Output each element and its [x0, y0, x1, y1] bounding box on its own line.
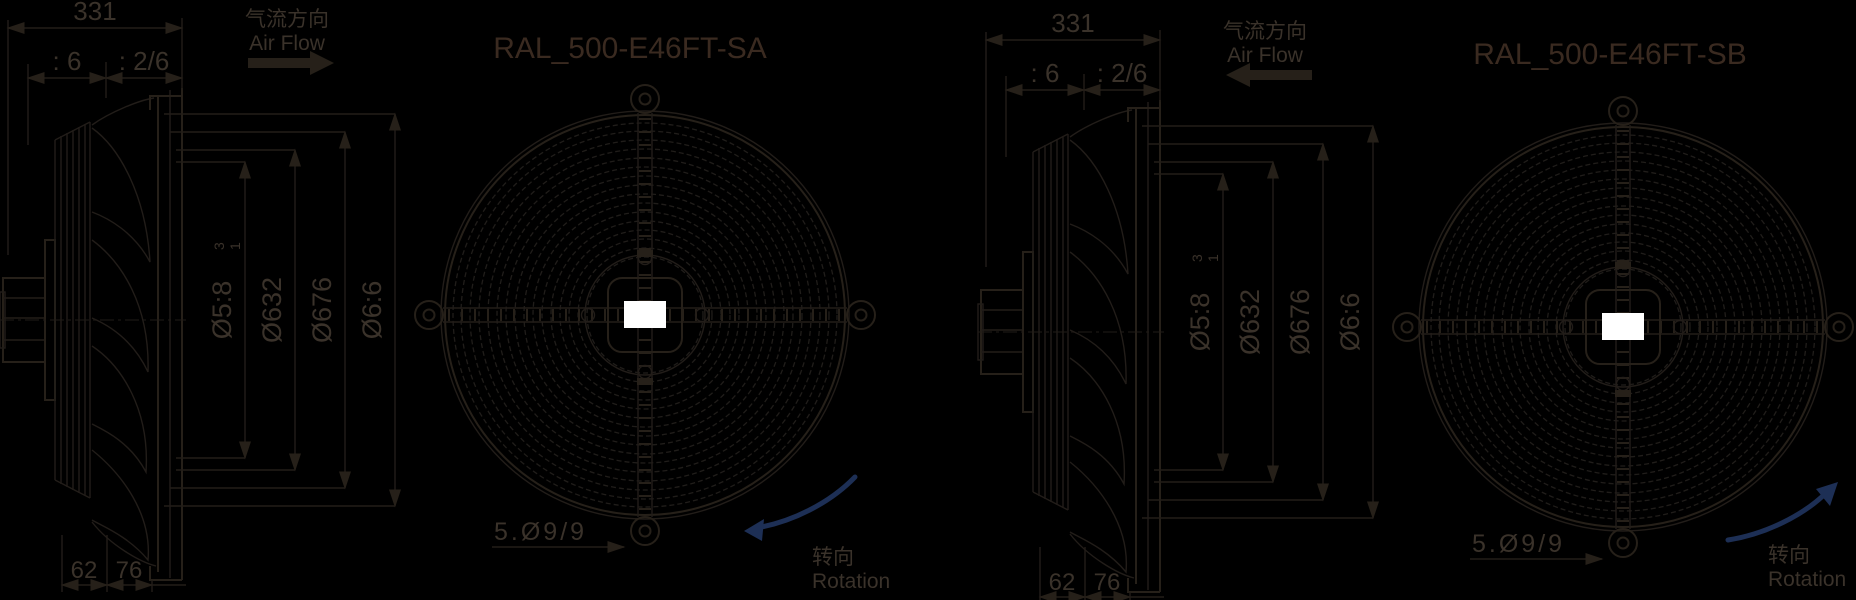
- dim-dia1: Ø5:8: [1185, 293, 1215, 352]
- airflow-label-zh: 气流方向: [1223, 20, 1307, 43]
- dim-dia1-tol-top: 3: [211, 242, 227, 250]
- dim-dia2: Ø632: [257, 277, 287, 343]
- holes-callout: 5.Ø9/9: [494, 518, 587, 546]
- rotation-arrowhead: [744, 519, 764, 541]
- dim-dia3: Ø676: [1285, 289, 1315, 355]
- dim-dia3: Ø676: [307, 277, 337, 343]
- rotation-label-en: Rotation: [812, 570, 890, 593]
- front-view: [1393, 97, 1853, 557]
- dim-dia1-tol-top: 3: [1189, 254, 1205, 262]
- dim-dia4: Ø6:6: [357, 281, 387, 340]
- rotation-arrow-ccw: [756, 477, 855, 528]
- dim-dia2: Ø632: [1235, 289, 1265, 355]
- dim-dia1-tol-bottom: 1: [227, 242, 243, 250]
- dim-bottom-a: 62: [1049, 569, 1076, 596]
- front-view: [415, 85, 875, 545]
- dim-seg-b: : 2/6: [1097, 58, 1148, 88]
- airflow-label-en: Air Flow: [249, 32, 326, 55]
- dim-dia1-tol-bottom: 1: [1205, 254, 1221, 262]
- side-view: [0, 88, 186, 580]
- rotation-arrow-cw: [1728, 492, 1827, 540]
- dim-dia1: Ø5:8: [207, 281, 237, 340]
- dim-seg-b: : 2/6: [119, 46, 170, 76]
- dim-bottom-b: 76: [116, 557, 143, 584]
- rotation-arrowhead: [1816, 482, 1838, 506]
- drawing-canvas: RAL_500-E46FT-SA 331 : 6 : 2/6 Ø5:8 3 1 …: [0, 0, 1856, 600]
- dim-dia4: Ø6:6: [1335, 293, 1365, 352]
- dim-bottom-a: 62: [71, 557, 98, 584]
- drawing-sb: RAL_500-E46FT-SB 331 : 6 : 2/6 Ø5:8 3 1 …: [978, 8, 1853, 600]
- dim-total-depth: 331: [73, 0, 116, 26]
- airflow-label-en: Air Flow: [1227, 44, 1304, 67]
- dim-seg-a: : 6: [53, 46, 82, 76]
- dim-seg-a: : 6: [1031, 58, 1060, 88]
- model-title: RAL_500-E46FT-SB: [1473, 38, 1746, 71]
- fan-technical-drawing: RAL_500-E46FT-SA 331 : 6 : 2/6 Ø5:8 3 1 …: [0, 0, 1856, 600]
- rotation-label-en: Rotation: [1768, 568, 1846, 591]
- rotation-label-zh: 转向: [812, 546, 854, 569]
- rotation-label-zh: 转向: [1768, 544, 1810, 567]
- model-title: RAL_500-E46FT-SA: [493, 32, 766, 65]
- holes-callout: 5.Ø9/9: [1472, 530, 1565, 558]
- dim-total-depth: 331: [1051, 8, 1094, 38]
- dim-bottom-b: 76: [1094, 569, 1121, 596]
- drawing-sa: RAL_500-E46FT-SA 331 : 6 : 2/6 Ø5:8 3 1 …: [0, 0, 890, 593]
- side-view: [978, 100, 1164, 592]
- airflow-label-zh: 气流方向: [245, 8, 329, 31]
